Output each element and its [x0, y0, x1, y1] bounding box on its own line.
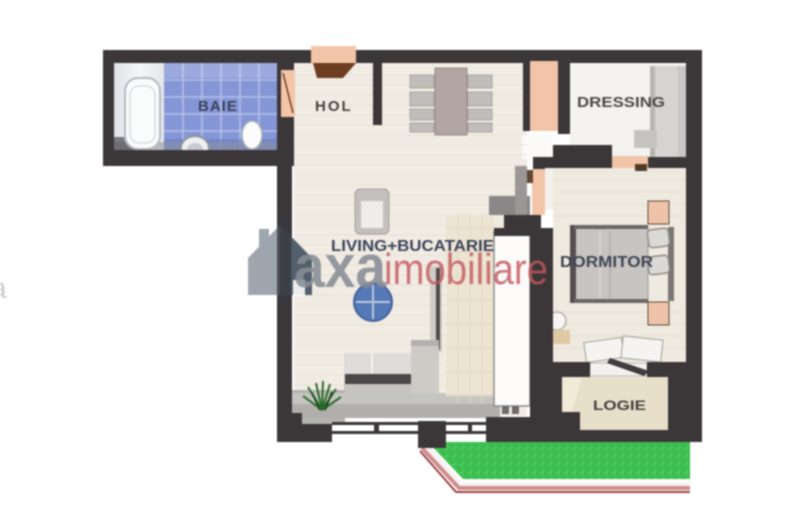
svg-text:imobiliare: imobiliare — [384, 245, 548, 294]
svg-text:a: a — [0, 272, 7, 305]
svg-text:BAIE: BAIE — [198, 98, 238, 115]
svg-text:LOGIE: LOGIE — [593, 397, 646, 413]
svg-text:DORMITOR: DORMITOR — [560, 254, 653, 271]
svg-text:DRESSING: DRESSING — [577, 95, 665, 111]
svg-text:HOL: HOL — [315, 98, 353, 115]
svg-text:axa: axa — [294, 233, 387, 300]
